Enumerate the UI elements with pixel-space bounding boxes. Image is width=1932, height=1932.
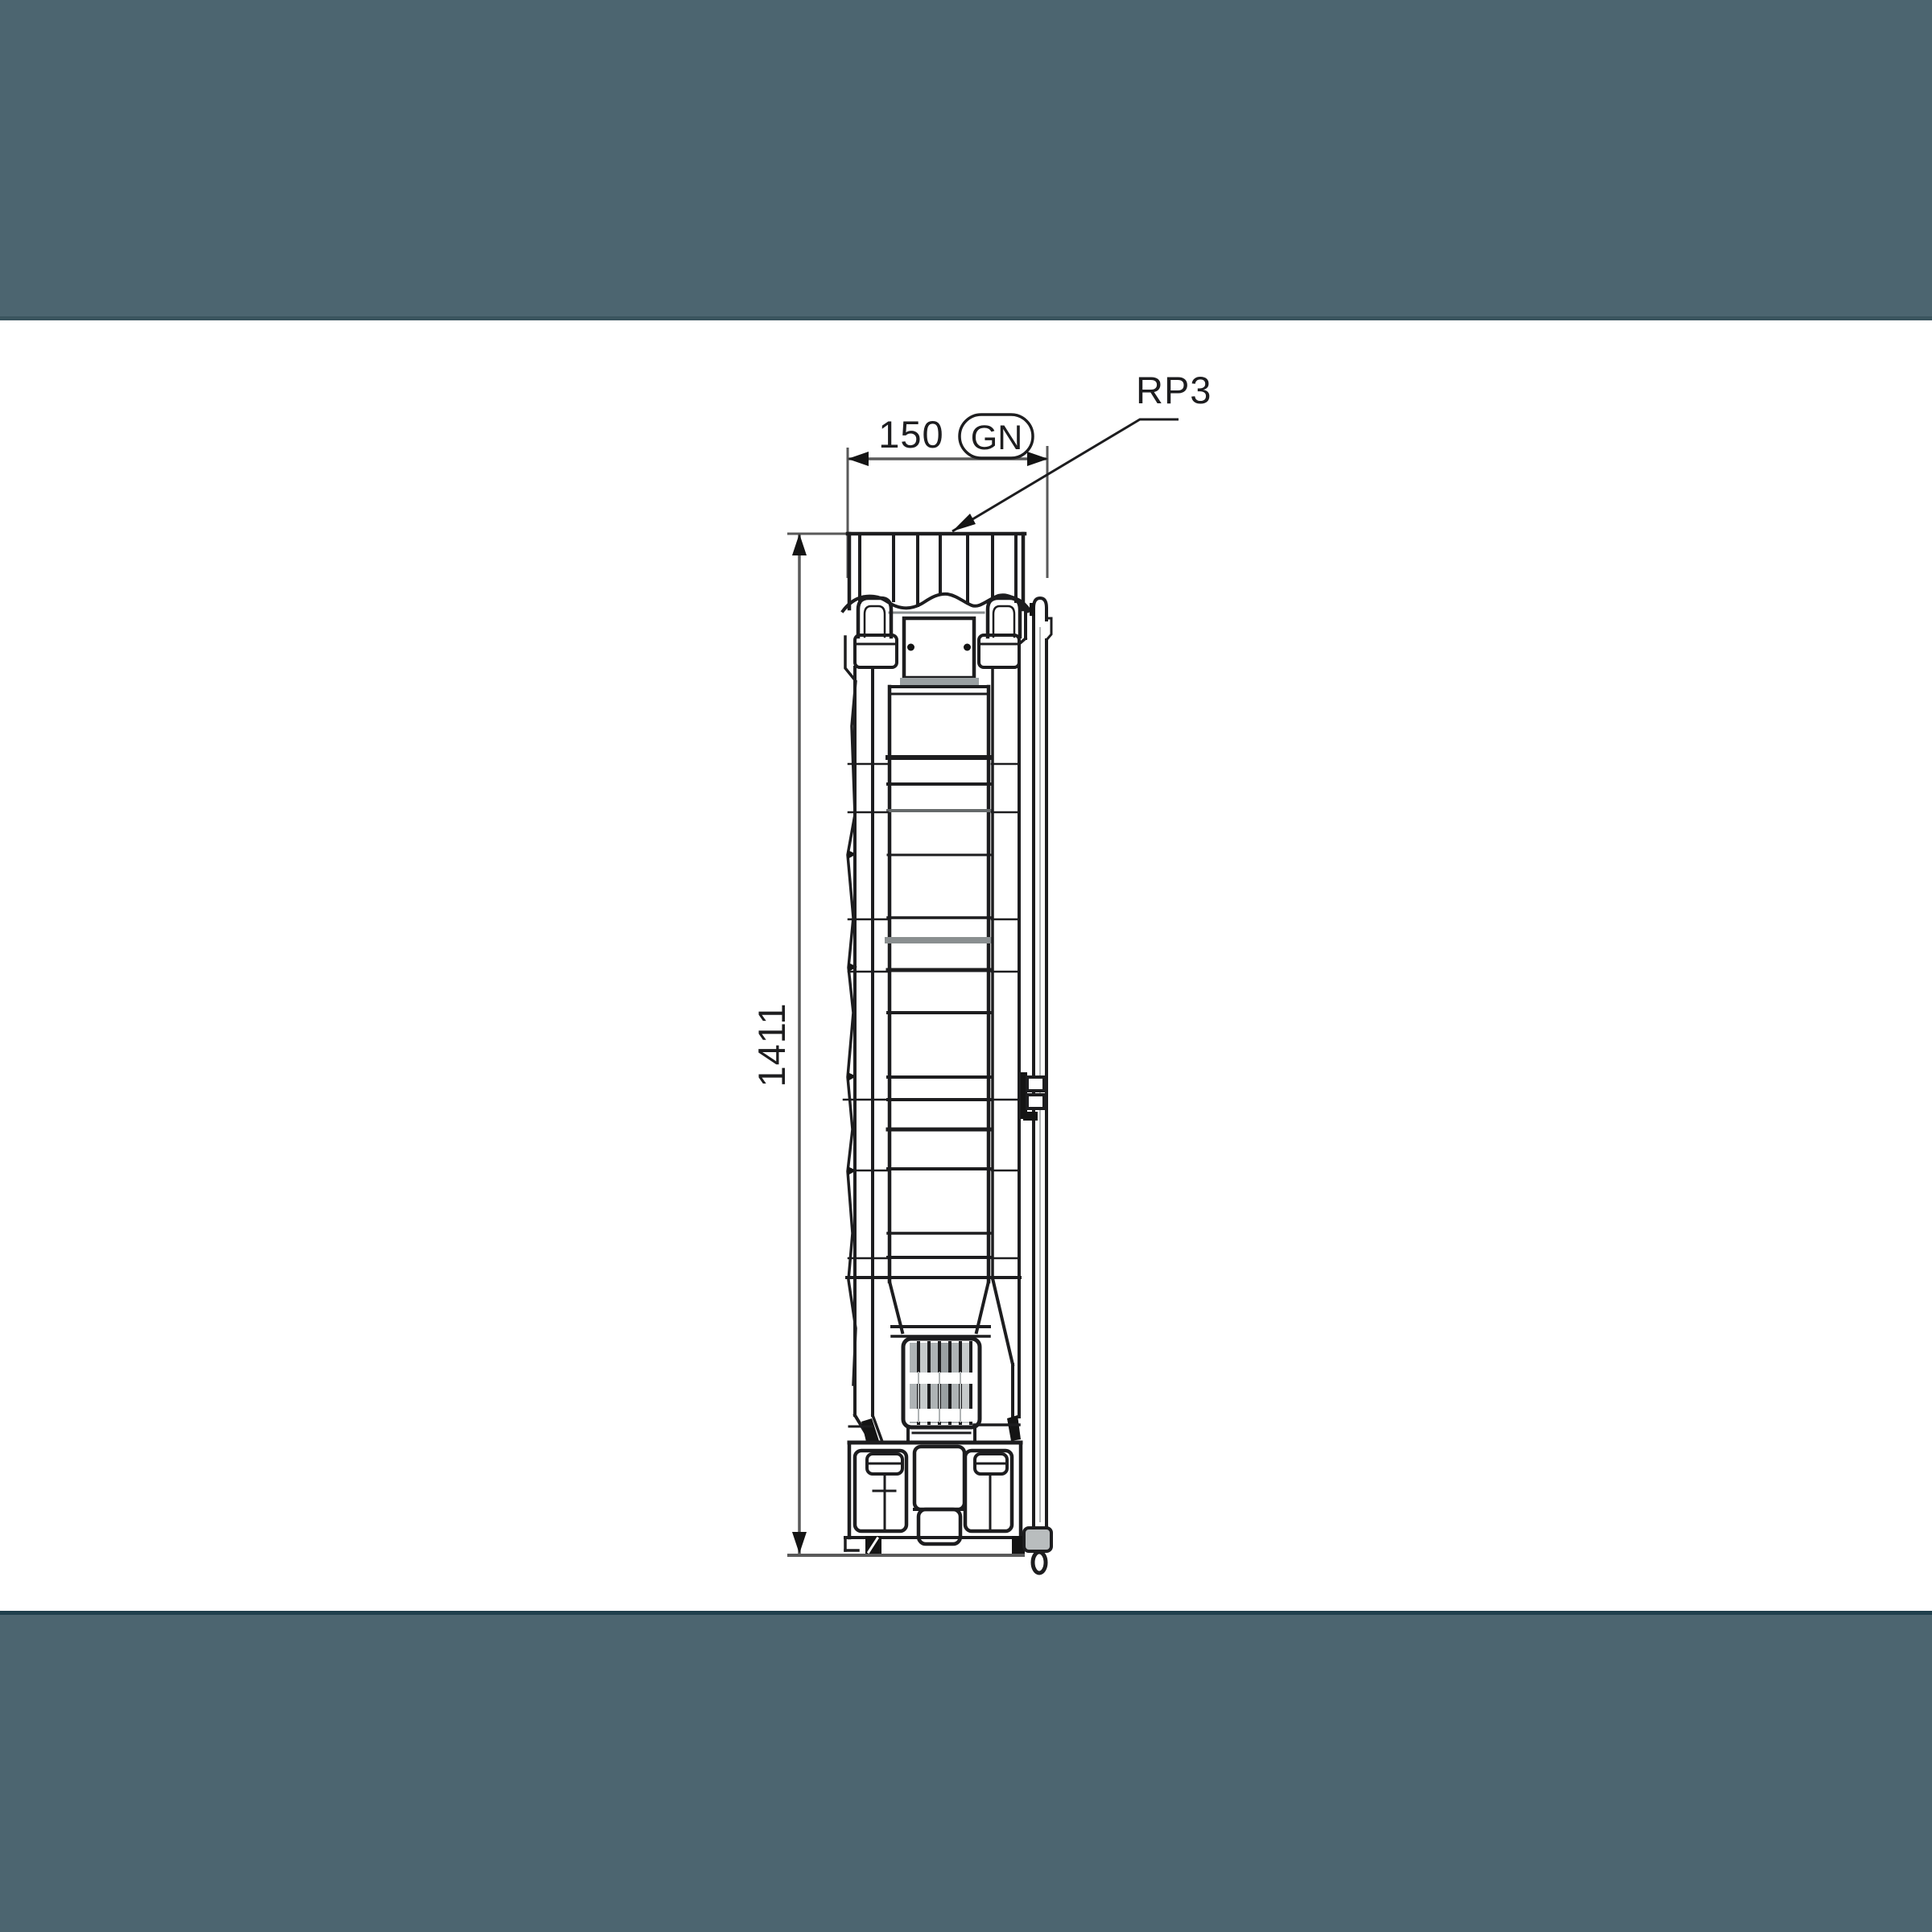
motor-center-housing (914, 1447, 964, 1509)
conduit-end-loop (1033, 1552, 1046, 1573)
width-dim-label: 150 (878, 413, 943, 456)
top-band (0, 0, 1932, 320)
motor-section (845, 1443, 1025, 1554)
rp3-label: RP3 (1136, 369, 1212, 411)
pump-head (855, 597, 1032, 694)
conduit-end-bracket (1024, 1528, 1051, 1551)
arrow-left (848, 452, 869, 466)
bottom-band-edge (0, 1611, 1932, 1615)
junction-box (904, 618, 974, 678)
bottom-band (0, 1611, 1932, 1932)
cable-guard-left (845, 637, 882, 1442)
screenshot-root: 150 GN RP3 1411 (0, 0, 1932, 1932)
technical-drawing: 150 GN RP3 1411 (0, 0, 1932, 1932)
cable-conduit (1021, 598, 1051, 1573)
height-dim-label: 1411 (750, 1002, 793, 1087)
leader-arrow (952, 514, 976, 531)
gn-label: GN (971, 419, 1023, 457)
outlet-gn-badge: GN (960, 415, 1033, 458)
clamp-tab-left (858, 598, 891, 637)
pump-body (843, 534, 1051, 1573)
top-band-edge (0, 316, 1932, 320)
arrow-right (1027, 452, 1048, 466)
arrow-down (792, 1532, 807, 1554)
arrow-up (792, 534, 807, 555)
